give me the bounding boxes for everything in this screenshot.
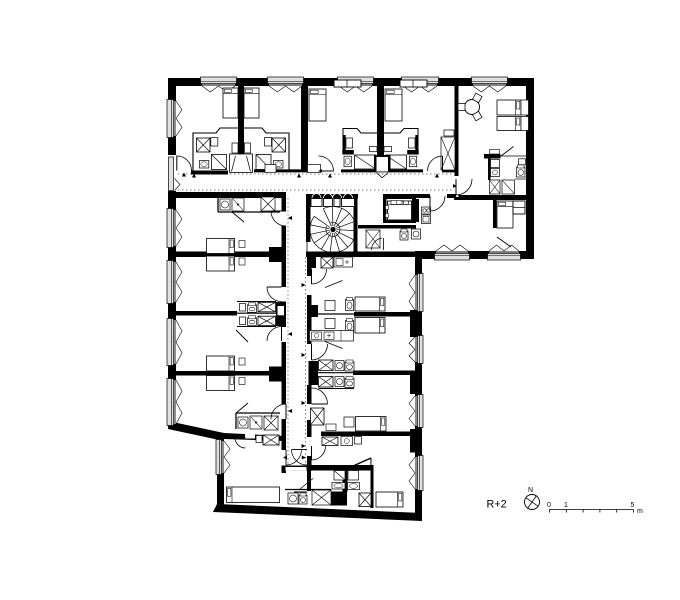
svg-text:m: m bbox=[637, 508, 643, 515]
svg-text:1: 1 bbox=[564, 502, 568, 509]
svg-text:N: N bbox=[528, 487, 533, 494]
svg-text:R+2: R+2 bbox=[487, 499, 507, 511]
svg-text:5: 5 bbox=[631, 502, 635, 509]
svg-text:0: 0 bbox=[547, 502, 551, 509]
